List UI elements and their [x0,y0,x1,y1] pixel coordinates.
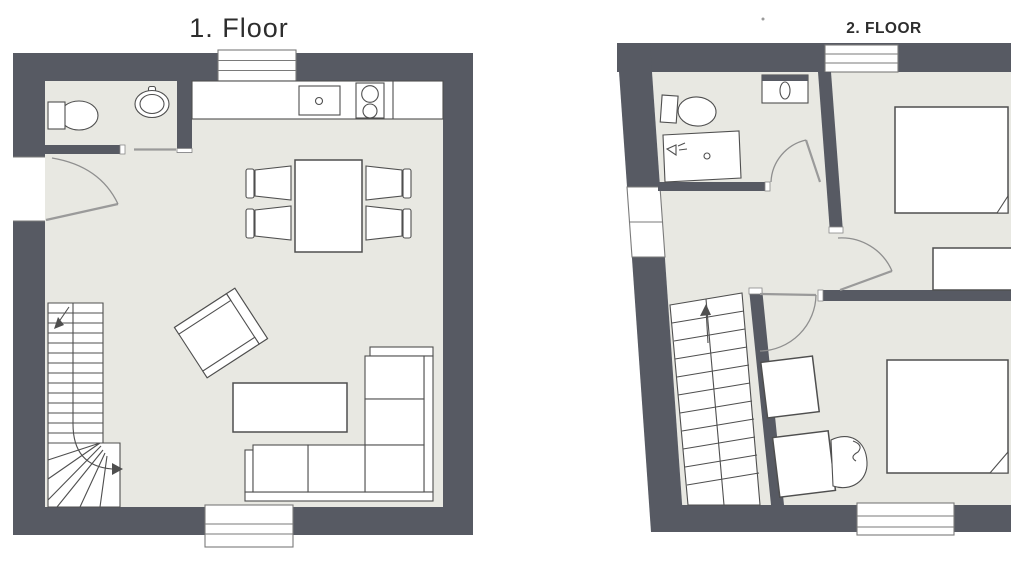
dining-chair-1 [246,166,291,200]
toilet-icon [48,101,98,130]
floor2-windows-left [627,187,665,257]
sofa-cushion [253,445,308,492]
sofa-cushion [365,356,424,399]
bedroom-divider-wall [818,290,1011,301]
side-table [773,431,836,497]
bed-2 [887,360,1008,473]
floorplan-canvas: 1. Floor 2. FLOOR [0,0,1011,570]
sofa-right-backrest [424,356,433,492]
floor2-window-top [825,45,898,72]
entrance-opening-caps [13,157,45,221]
bed-1 [895,107,1008,213]
desk [761,356,819,418]
kitchen-sink-icon [299,86,340,115]
curved-armchair-icon [831,437,867,488]
sofa-bottom-backrest [245,492,433,501]
floor2-plan [600,0,1011,570]
dining-chair-3 [366,166,411,200]
dresser [933,248,1011,290]
wall-bottom [651,505,1011,532]
coffee-table [233,383,347,432]
sofa-cushion [365,399,424,445]
floor1-window-top [218,50,296,81]
dining-chair-2 [246,206,291,240]
stove-icon [356,83,384,118]
sofa-cushion [365,445,424,492]
dining-table [295,160,362,252]
sofa-cushion [308,445,365,492]
toilet-tank [660,95,678,123]
kitchen-counter [192,81,443,119]
wall-left-upper [13,53,45,157]
washbasin-icon [762,75,808,103]
wall-right [443,53,473,535]
wall-left-lower [13,221,45,535]
floor2-window-bottom [857,503,954,535]
wall-top [617,43,1011,72]
floor1-plan [0,0,505,570]
bathroom-wall [658,182,770,191]
sofa-left-armrest [245,450,253,492]
floor1-window-bottom [205,505,293,547]
sofa-top-armrest [370,347,433,356]
toilet-tank [48,102,65,129]
shower-icon [663,131,741,182]
toilet-bowl [60,101,98,130]
speck-dot [762,18,765,21]
dining-chair-4 [366,206,411,240]
